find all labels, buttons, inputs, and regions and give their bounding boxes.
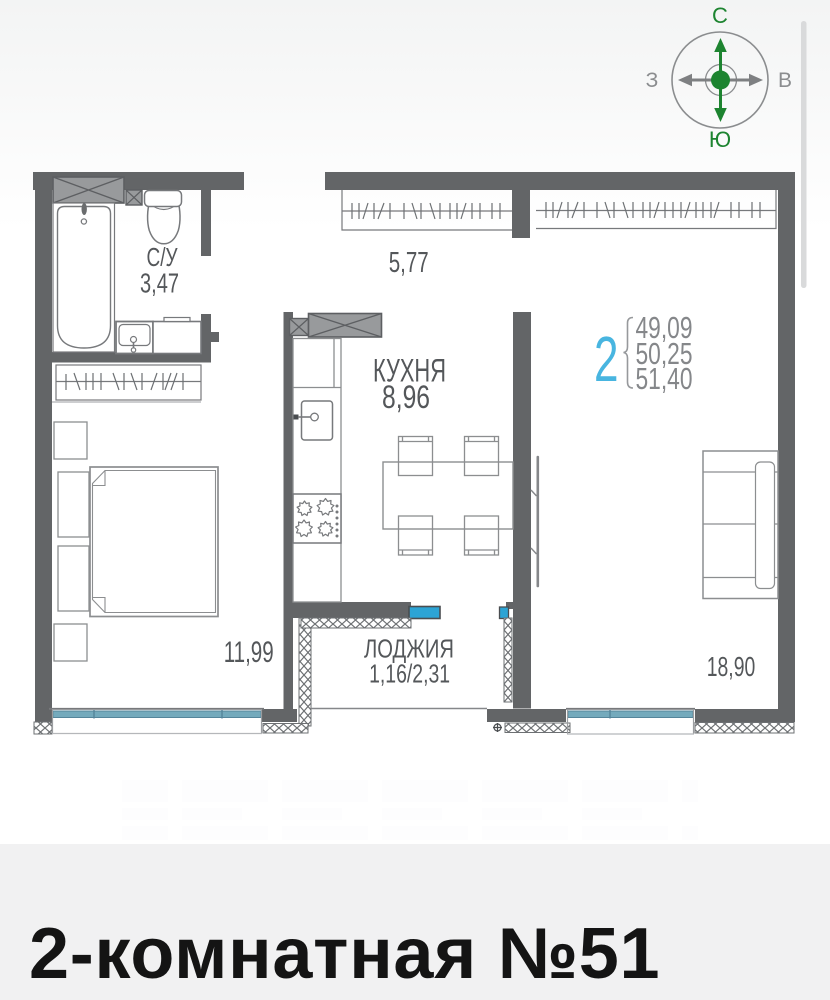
svg-text:Ю: Ю	[709, 127, 731, 152]
svg-text:18,90: 18,90	[707, 651, 756, 682]
svg-text:С: С	[712, 3, 728, 28]
svg-text:З: З	[646, 69, 659, 92]
svg-text:1,16/2,31: 1,16/2,31	[369, 659, 450, 689]
svg-text:2-комнатная №51: 2-комнатная №51	[29, 914, 660, 994]
svg-text:2: 2	[594, 323, 619, 395]
svg-text:11,99: 11,99	[224, 636, 274, 669]
svg-text:3,47: 3,47	[140, 268, 179, 299]
svg-text:В: В	[778, 69, 792, 92]
svg-text:5,77: 5,77	[389, 247, 429, 279]
svg-text:51,40: 51,40	[636, 362, 693, 396]
svg-text:8,96: 8,96	[382, 379, 430, 415]
